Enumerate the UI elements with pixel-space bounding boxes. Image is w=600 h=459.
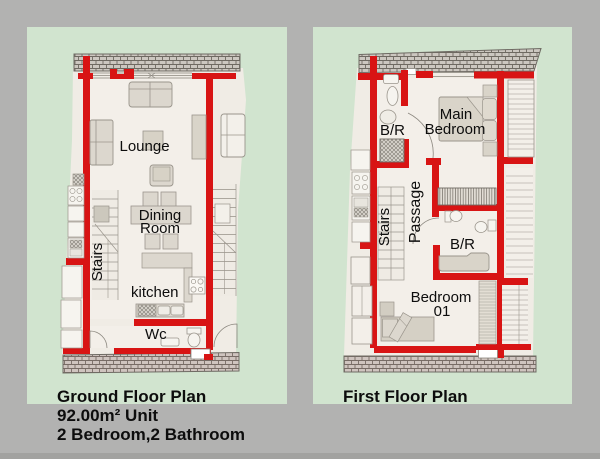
svg-text:01: 01 [434,303,451,320]
svg-text:Stairs: Stairs [89,243,106,281]
svg-text:Passage: Passage [407,181,424,243]
svg-text:Room: Room [140,220,180,237]
svg-text:kitchen: kitchen [131,284,179,301]
svg-text:Lounge: Lounge [120,138,170,155]
svg-text:Stairs: Stairs [376,208,393,246]
svg-text:Bedroom: Bedroom [425,121,486,138]
svg-text:First Floor Plan: First Floor Plan [343,387,468,406]
svg-text:Wc: Wc [145,326,167,343]
svg-text:92.00m² Unit: 92.00m² Unit [57,406,158,425]
svg-text:B/R: B/R [450,236,475,253]
svg-text:B/R: B/R [380,122,405,139]
svg-text:2 Bedroom,2 Bathroom: 2 Bedroom,2 Bathroom [57,425,245,444]
svg-text:Ground Floor Plan: Ground Floor Plan [57,387,206,406]
